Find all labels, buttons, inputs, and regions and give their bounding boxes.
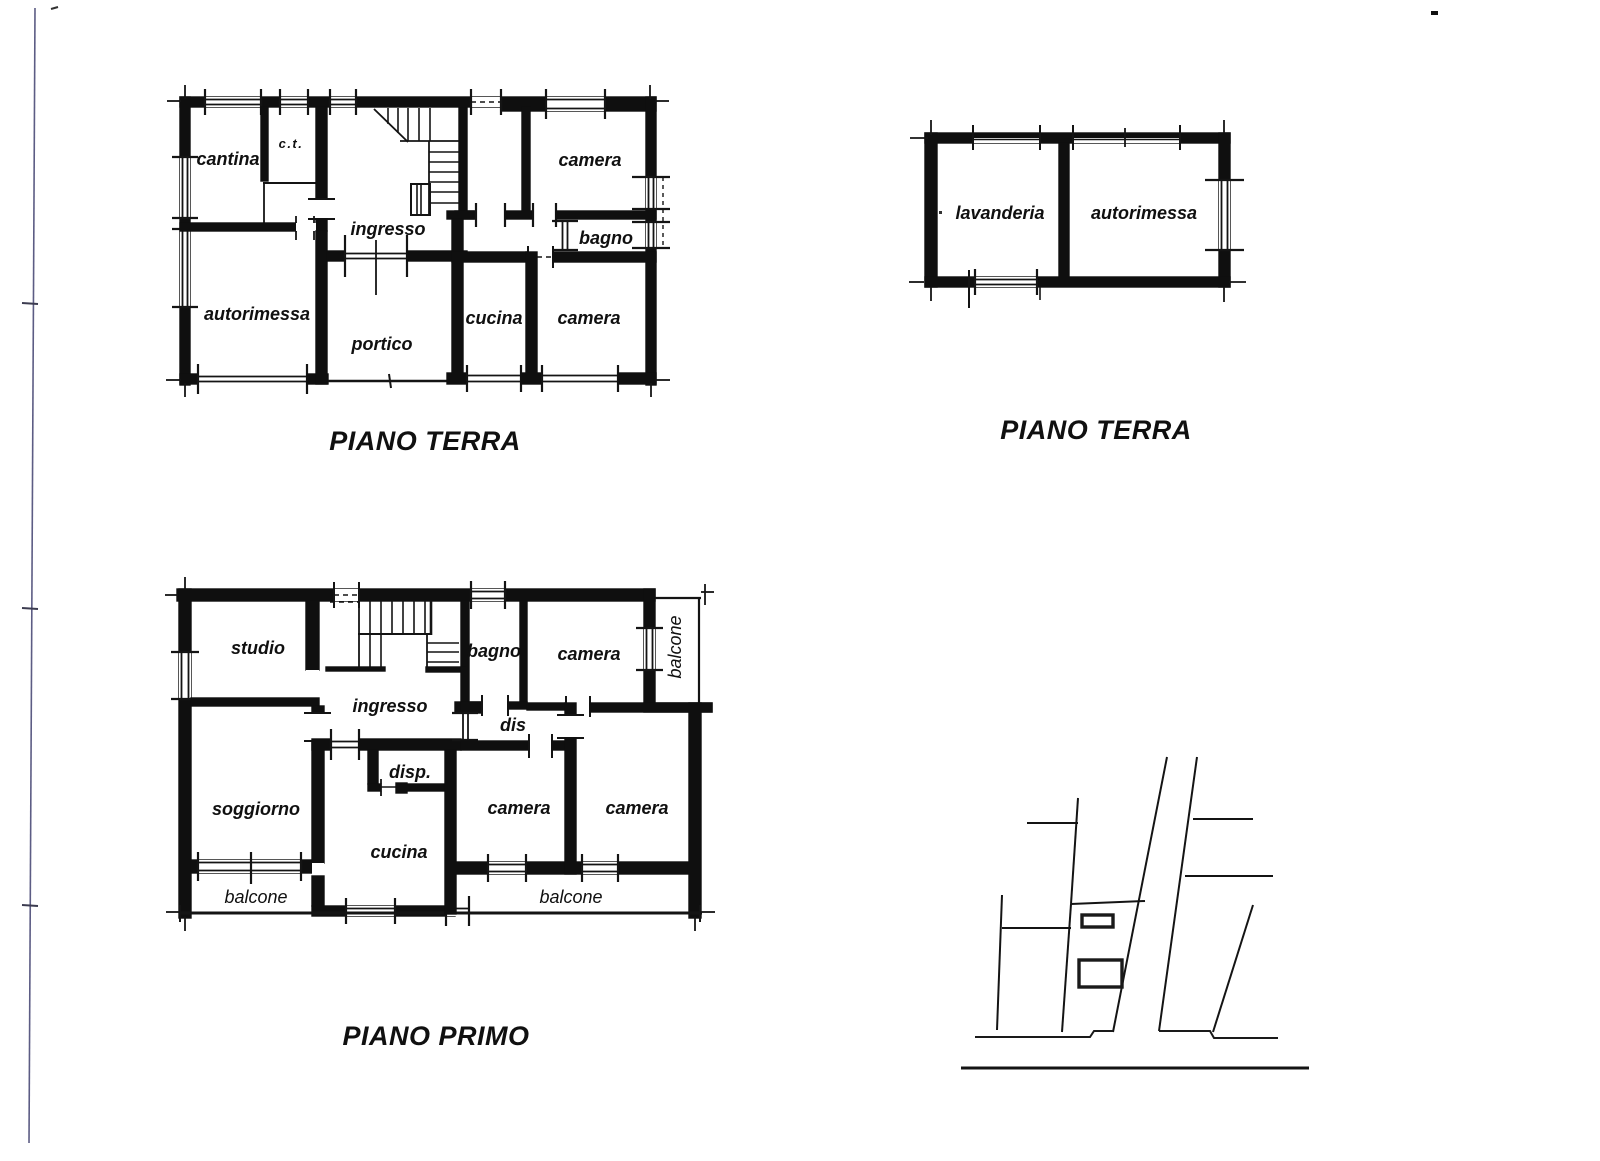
svg-text:camera: camera [558,150,621,170]
svg-text:camera: camera [557,644,620,664]
svg-text:camera: camera [605,798,668,818]
svg-text:disp.: disp. [389,762,431,782]
svg-text:PIANO TERRA: PIANO TERRA [1000,415,1192,445]
svg-text:ingresso: ingresso [350,219,425,239]
svg-text:balcone: balcone [224,887,287,907]
svg-text:balcone: balcone [665,615,685,678]
svg-text:autorimessa: autorimessa [1091,203,1197,223]
svg-text:soggiorno: soggiorno [212,799,300,819]
svg-text:bagno: bagno [579,228,633,248]
svg-text:balcone: balcone [539,887,602,907]
svg-text:cucina: cucina [370,842,427,862]
svg-text:lavanderia: lavanderia [955,203,1044,223]
svg-text:c.t.: c.t. [279,136,304,151]
svg-text:cucina: cucina [465,308,522,328]
svg-text:PIANO TERRA: PIANO TERRA [329,426,521,456]
svg-text:dis: dis [500,715,526,735]
svg-text:portico: portico [351,334,413,354]
svg-text:studio: studio [231,638,285,658]
svg-text:camera: camera [487,798,550,818]
svg-text:autorimessa: autorimessa [204,304,310,324]
svg-text:bagno: bagno [467,641,521,661]
svg-text:camera: camera [557,308,620,328]
svg-text:ingresso: ingresso [352,696,427,716]
svg-text:PIANO PRIMO: PIANO PRIMO [342,1021,529,1051]
svg-text:cantina: cantina [196,149,259,169]
